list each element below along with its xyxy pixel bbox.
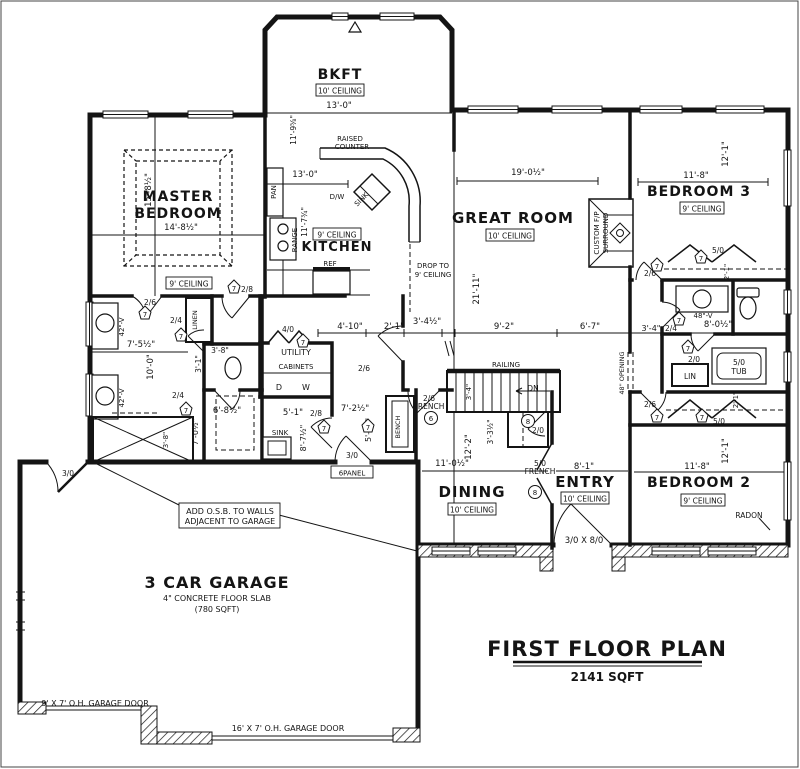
dim-label: 7'-2½"	[341, 404, 369, 414]
dim-label: 11'-9⅝"	[289, 115, 298, 145]
range-label: RANGE	[291, 228, 299, 252]
radon-label: RADON	[735, 511, 762, 520]
svg-text:7: 7	[184, 407, 188, 415]
room-label-master-2: BEDROOM	[134, 206, 221, 222]
sink-label: SINK	[272, 429, 289, 437]
vanity-label: 42"-V	[118, 317, 126, 336]
floor-plan-drawing: BKFT 10' CEILING 13'-0" MASTER BEDROOM 1…	[0, 0, 800, 769]
door-label: 2/0	[688, 355, 700, 364]
osb-note-1: ADD O.S.B. TO WALLS	[186, 507, 274, 516]
ceiling-tag: 9' CEILING	[317, 231, 356, 240]
dim-label: 12'-1"	[721, 141, 731, 167]
linen-label: LIN	[684, 372, 696, 381]
raised-counter-label-1: RAISED	[337, 135, 363, 143]
dim-label: 3'-4"	[465, 384, 473, 401]
page-title: FIRST FLOOR PLAN	[487, 637, 727, 661]
ceiling-tag: 10' CEILING	[318, 87, 362, 96]
door-label: 5/0	[712, 246, 724, 255]
svg-text:7: 7	[179, 333, 183, 341]
drop-ceiling-label-1: DROP TO	[417, 262, 449, 270]
sink-basin-icon	[96, 314, 114, 332]
room-label-bed3: BEDROOM 3	[647, 184, 751, 200]
room-label-bkft: BKFT	[318, 67, 363, 83]
floor-plan-sheet: BKFT 10' CEILING 13'-0" MASTER BEDROOM 1…	[0, 0, 800, 769]
dim-label: 11'-8"	[684, 462, 710, 472]
svg-text:7: 7	[232, 285, 236, 293]
dishwasher-label: D/W	[330, 193, 345, 201]
room-label-entry: ENTRY	[555, 473, 615, 491]
plan-area: 2141 SQFT	[571, 670, 645, 684]
dim-label: 13'-0"	[326, 101, 352, 111]
ceiling-tag: 9' CEILING	[683, 497, 722, 506]
dim-label: 8'-1"	[574, 462, 594, 472]
cabinets-label: CABINETS	[279, 363, 314, 371]
svg-text:8: 8	[526, 418, 530, 426]
vanity-label: 42"-V	[118, 388, 126, 407]
tub-label-1: 5/0	[733, 358, 745, 367]
bench-label: BENCH	[394, 415, 402, 438]
dim-label: 15'-8½"	[144, 173, 154, 207]
opening-label: 48" OPENING	[618, 351, 626, 394]
dim-label: 3'-4"	[642, 324, 661, 333]
burner-icon	[278, 224, 288, 234]
dim-label: 12'-2"	[464, 434, 474, 460]
dim-label: 19'-0½"	[511, 168, 545, 178]
door-label: 2/8	[310, 409, 322, 418]
room-label-utility: UTILITY	[281, 348, 311, 357]
door-label: 2/4	[170, 316, 182, 325]
dim-label: 2'-1"	[732, 392, 740, 409]
railing-label: RAILING	[492, 361, 520, 369]
svg-text:7: 7	[366, 424, 370, 432]
dim-label: 8'-7½"	[299, 425, 308, 452]
svg-text:7: 7	[655, 263, 659, 271]
svg-text:7: 7	[322, 425, 326, 433]
fireplace-label-2: SURROUND	[602, 213, 610, 254]
svg-text:6: 6	[429, 415, 434, 423]
svg-text:7: 7	[143, 311, 147, 319]
door-label: 2/6	[358, 364, 370, 373]
toilet-icon	[225, 357, 241, 379]
garage-door-9-label: 9' X 7' O.H. GARAGE DOOR	[41, 699, 149, 708]
sink-basin-icon	[96, 387, 114, 405]
osb-note-2: ADJACENT TO GARAGE	[185, 517, 275, 526]
dim-label: 3'-3½"	[486, 419, 495, 444]
room-label-great: GREAT ROOM	[452, 209, 574, 227]
dim-label: 5'-1"	[283, 408, 303, 418]
dim-label: 10'-0"	[146, 354, 156, 380]
sink-basin-icon	[693, 290, 711, 308]
dim-label: 3'-4½"	[413, 317, 441, 327]
toilet-tank-icon	[737, 288, 759, 297]
svg-text:8: 8	[533, 489, 537, 497]
dim-label: 21'-11"	[472, 273, 482, 304]
tub-label-2: TUB	[730, 367, 746, 376]
garage-sqft-note: (780 SQFT)	[195, 605, 240, 614]
ceiling-tag: 10' CEILING	[563, 495, 607, 504]
room-label-bed2: BEDROOM 2	[647, 475, 751, 491]
room-label-dining: DINING	[438, 483, 505, 501]
raised-counter-label-2: COUNTER	[335, 143, 369, 151]
drop-ceiling-label-2: 9' CEILING	[415, 271, 452, 279]
door-label: 2/0	[532, 426, 544, 435]
ref-label: REF	[323, 260, 336, 268]
ceiling-tag: 10' CEILING	[450, 506, 494, 515]
ceiling-tag: 9' CEILING	[169, 280, 208, 289]
door-label: 5/0	[713, 417, 725, 426]
burner-icon	[278, 241, 288, 251]
door-label: 4/0	[282, 325, 294, 334]
dim-label: 2'-1"	[723, 264, 731, 281]
dim-label: 3'-8"	[211, 346, 229, 355]
fireplace-label-1: CUSTOM F/P	[593, 211, 601, 254]
dim-label: 11'-8"	[683, 171, 709, 181]
mud-sink	[263, 437, 291, 459]
dim-label: 9'-2"	[494, 322, 514, 332]
door-label-french: FRENCH	[414, 402, 445, 411]
door-label-french: FRENCH	[525, 467, 556, 476]
svg-text:7: 7	[301, 339, 305, 347]
door-label: 2/6	[144, 298, 156, 307]
dim-label: 8'-0½"	[704, 320, 732, 330]
room-label-kitchen: KITCHEN	[302, 240, 373, 255]
dim-label: 3'-8"	[162, 432, 170, 449]
dim-label: 13'-0"	[292, 170, 318, 180]
dim-label: 7'-0½"	[191, 419, 200, 446]
svg-text:7: 7	[700, 414, 704, 422]
room-label-garage: 3 CAR GARAGE	[145, 573, 290, 592]
vanity-label: 48"-V	[693, 312, 712, 320]
door-label: 3/0	[346, 451, 358, 460]
svg-text:7: 7	[677, 317, 681, 325]
door-label: 2/6	[644, 400, 656, 409]
pantry-label: PAN	[270, 185, 278, 199]
door-label: 3/0	[62, 469, 74, 478]
svg-text:7: 7	[655, 414, 659, 422]
toilet-icon	[740, 297, 756, 319]
door-marker-6-icon: 6	[425, 412, 438, 425]
svg-text:7: 7	[686, 345, 690, 353]
down-label: DN	[527, 384, 538, 393]
sixpanel-label: 6PANEL	[339, 470, 366, 478]
ceiling-tag: 10' CEILING	[488, 232, 532, 241]
washer-label: W	[302, 383, 310, 392]
garage-door-16-label: 16' X 7' O.H. GARAGE DOOR	[232, 724, 345, 733]
dim-label: 14'-8½"	[164, 223, 198, 233]
dim-label: 6'-8½"	[213, 406, 241, 416]
svg-text:7: 7	[699, 255, 703, 263]
door-label: 2/4	[172, 391, 184, 400]
dim-label: 3'-1"	[194, 355, 203, 373]
refrigerator	[313, 271, 350, 294]
garage-slab-note: 4" CONCRETE FLOOR SLAB	[163, 594, 271, 603]
dim-label: 7'-5½"	[127, 340, 155, 350]
dim-label: 4'-10"	[337, 322, 363, 332]
dim-label: 6'-7"	[580, 322, 600, 332]
door-label: 2/8	[241, 285, 253, 294]
dim-label: 11'-7¾"	[300, 207, 309, 237]
dryer-label: D	[276, 383, 282, 392]
dim-label: 12'-1"	[721, 438, 731, 464]
linen-label: LINEN	[191, 310, 199, 330]
front-door-label: 3/0 X 8/0	[565, 536, 604, 546]
ceiling-tag: 9' CEILING	[682, 205, 721, 214]
dim-label: 2'-1"	[384, 322, 404, 332]
